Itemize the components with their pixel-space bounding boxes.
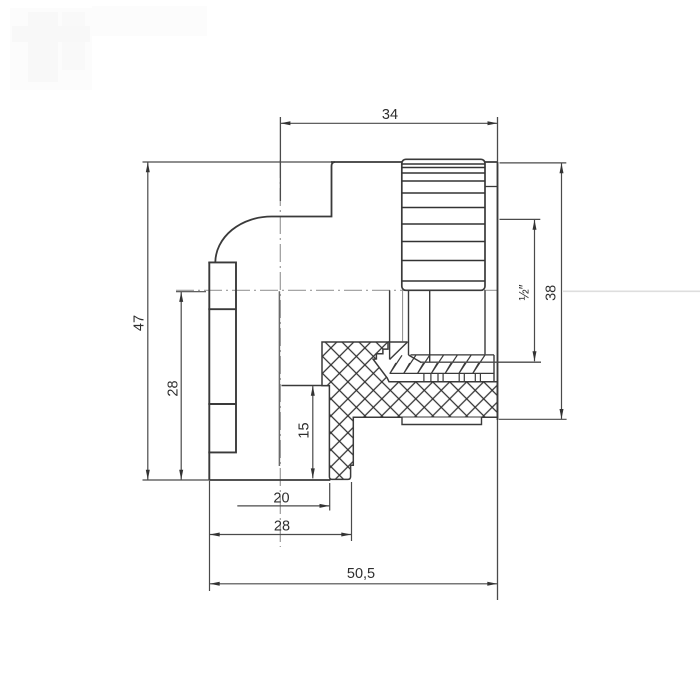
svg-text:28: 28 [274, 519, 290, 535]
svg-text:20: 20 [273, 491, 289, 507]
svg-text:38: 38 [544, 285, 560, 301]
svg-text:47: 47 [132, 315, 148, 331]
svg-text:34: 34 [382, 107, 398, 123]
svg-text:28: 28 [166, 380, 182, 396]
svg-text:15: 15 [297, 422, 313, 438]
svg-text:50,5: 50,5 [347, 566, 375, 582]
svg-text:½″: ½″ [517, 284, 532, 300]
